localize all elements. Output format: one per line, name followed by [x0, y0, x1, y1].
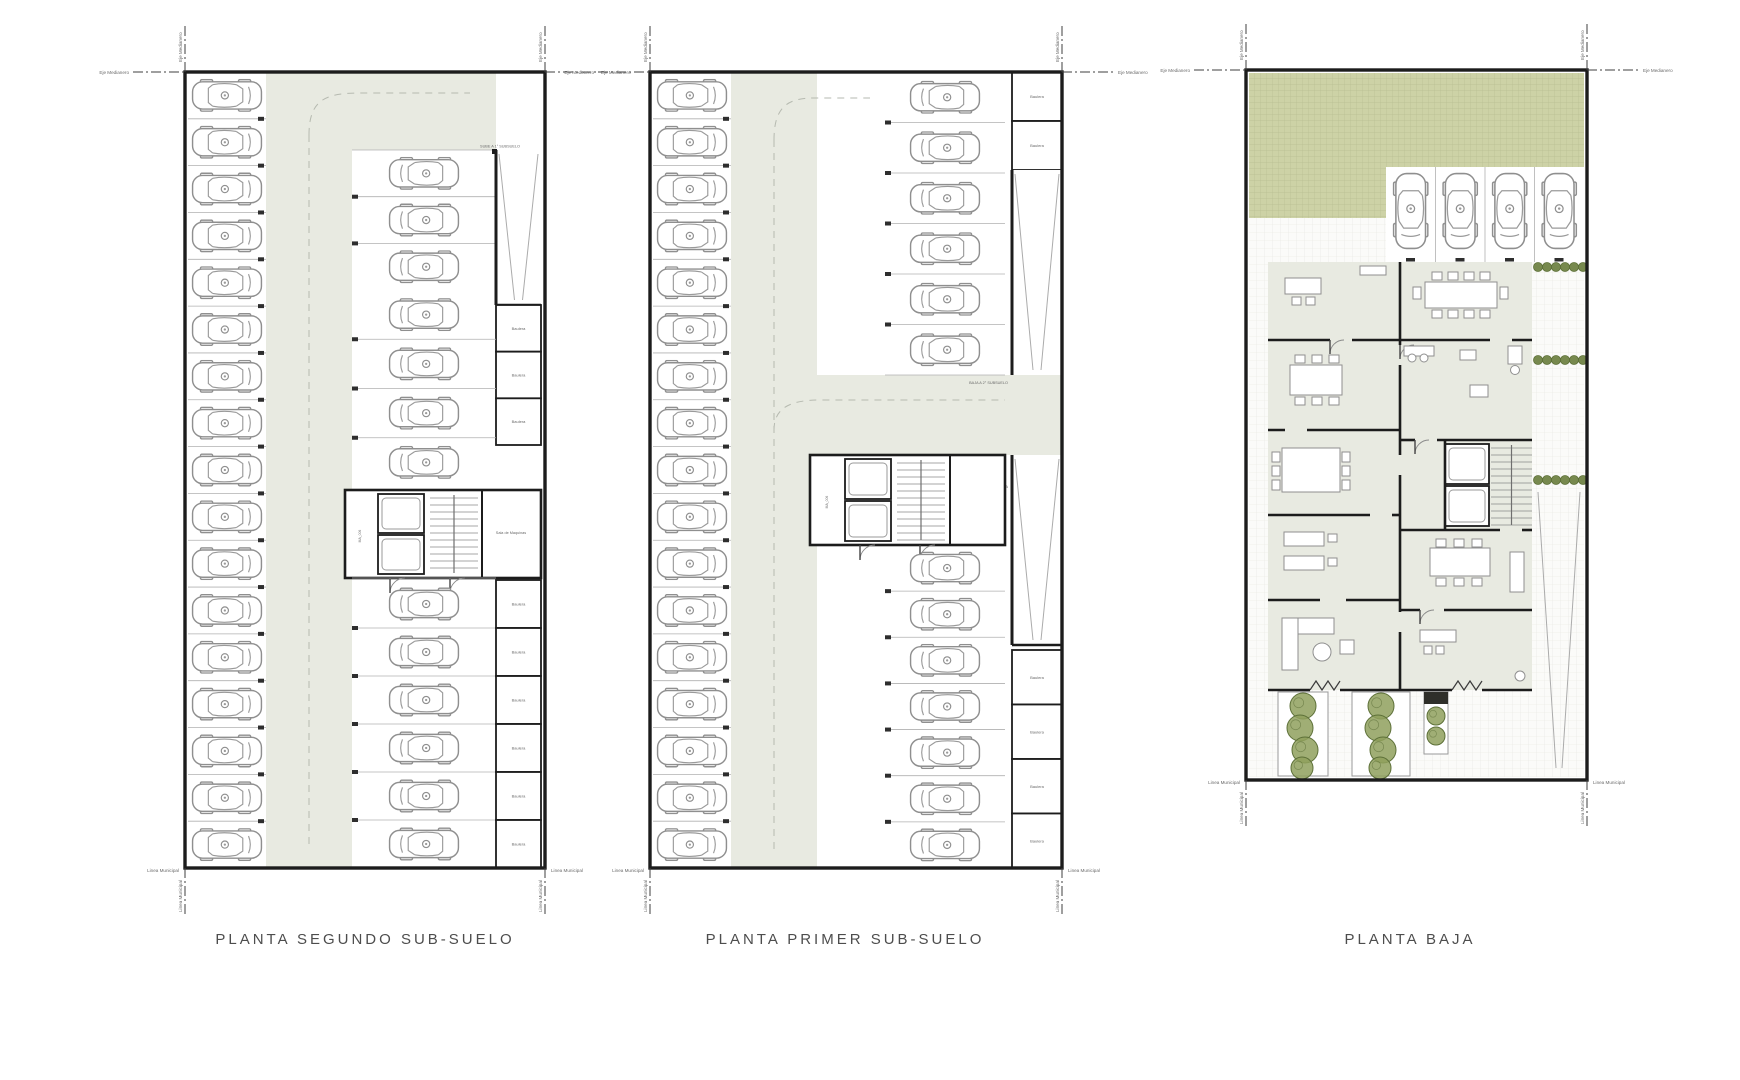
- hedge-icon: [1552, 356, 1561, 365]
- furniture: [1464, 272, 1474, 280]
- furniture: [1464, 310, 1474, 318]
- elevator-cab: [1445, 486, 1489, 526]
- car-icon: [911, 552, 980, 584]
- furniture: [1272, 452, 1280, 462]
- hedge-icon: [1561, 263, 1570, 272]
- wheel-stop: [258, 210, 264, 214]
- car-icon: [193, 501, 262, 533]
- furniture: [1312, 355, 1322, 363]
- hedge-icon: [1543, 356, 1552, 365]
- storage-cell-label: Baulera: [1030, 729, 1045, 734]
- hedge-icon: [1543, 476, 1552, 485]
- furniture: [1329, 397, 1339, 405]
- furniture: [1511, 366, 1520, 375]
- car-icon: [911, 645, 980, 677]
- car-icon: [390, 299, 459, 331]
- furniture: [1508, 346, 1522, 364]
- car-icon: [658, 548, 727, 580]
- furniture: [1424, 646, 1432, 654]
- car-icon: [911, 598, 980, 630]
- storage-cell-label: Baulera: [1030, 784, 1045, 789]
- furniture: [1480, 310, 1490, 318]
- wheel-stop: [885, 774, 891, 778]
- storage-cell-label: Baulera: [512, 746, 527, 751]
- municipal-line-label: Linea Municipal: [1068, 868, 1100, 873]
- elevator-core: MA_006Sala de Maquinas: [345, 490, 541, 593]
- car-icon: [193, 782, 262, 814]
- wheel-stop: [258, 772, 264, 776]
- hedge-icon: [1543, 263, 1552, 272]
- car-icon: [658, 595, 727, 627]
- furniture: [1292, 297, 1301, 305]
- building: [1268, 262, 1532, 690]
- rect: [1445, 444, 1489, 484]
- car-icon: [658, 173, 727, 205]
- municipal-line-label: Linea Municipal: [1055, 880, 1060, 912]
- storage-cell-label: Baulera: [512, 326, 527, 331]
- furniture: [1432, 310, 1442, 318]
- party-axis-label: Eje Medianero: [1055, 32, 1060, 62]
- furniture: [1360, 266, 1386, 275]
- furniture: [1342, 452, 1350, 462]
- furniture: [1408, 354, 1416, 362]
- hedge-icon: [1570, 263, 1579, 272]
- drive-aisle-turning: [817, 375, 1062, 455]
- municipal-line-label: Linea Municipal: [643, 880, 648, 912]
- car-icon: [658, 126, 727, 158]
- furniture: [1430, 548, 1490, 576]
- furniture: [1312, 397, 1322, 405]
- wheel-stop: [352, 674, 358, 678]
- wheel-stop: [723, 117, 729, 121]
- wheel-stop: [258, 679, 264, 683]
- rect: [1012, 455, 1062, 645]
- furniture: [1272, 480, 1280, 490]
- floor-plan-sheet: SUBE A 1° SUBSUELOBauleraBauleraBauleraM…: [0, 0, 1740, 1080]
- storage-cell-label: Baulera: [512, 602, 527, 607]
- furniture: [1425, 282, 1497, 308]
- furniture: [1272, 466, 1280, 476]
- car-icon: [658, 642, 727, 674]
- elevator-cab: [378, 494, 424, 533]
- car-icon: [1443, 174, 1477, 249]
- wheel-stop: [885, 171, 891, 175]
- furniture: [1282, 618, 1298, 670]
- storage-cell-label: Baulera: [512, 419, 527, 424]
- furniture: [1480, 272, 1490, 280]
- storage-cell-group: BauleraBauleraBauleraBauleraBauleraBaule…: [496, 580, 541, 868]
- municipal-line-label: Linea Municipal: [1580, 792, 1585, 824]
- architectural-drawing: SUBE A 1° SUBSUELOBauleraBauleraBauleraM…: [0, 0, 1740, 1080]
- wheel-stop: [885, 121, 891, 125]
- car-icon: [911, 691, 980, 723]
- drive-aisle: [266, 72, 496, 150]
- car-icon: [390, 397, 459, 429]
- tree-icon: [1291, 757, 1313, 779]
- car-icon: [911, 81, 980, 113]
- elevator-core: MA_006: [810, 455, 1005, 560]
- hedge-icon: [1534, 356, 1543, 365]
- wheel-stop: [352, 241, 358, 245]
- car-icon: [911, 132, 980, 164]
- wheel-stop: [885, 681, 891, 685]
- furniture: [1448, 310, 1458, 318]
- ramp-label: SUBE A 1° SUBSUELO: [480, 145, 520, 149]
- hedge-icon: [1570, 476, 1579, 485]
- car-icon: [390, 828, 459, 860]
- furniture: [1404, 346, 1434, 356]
- car-icon: [193, 829, 262, 861]
- wheel-stop: [352, 818, 358, 822]
- car-icon: [1493, 174, 1527, 249]
- furniture: [1306, 297, 1315, 305]
- storage-cell-label: Baulera: [512, 650, 527, 655]
- car-icon: [911, 182, 980, 214]
- car-icon: [193, 220, 262, 252]
- wheel-stop: [723, 257, 729, 261]
- plan-planta-baja: Eje MedianeroEje MedianeroEje MedianeroE…: [1160, 24, 1673, 826]
- elevator-tag: MA_006: [825, 496, 829, 509]
- car-icon: [911, 334, 980, 366]
- wheel-stop: [1505, 258, 1514, 262]
- car-icon: [658, 782, 727, 814]
- wheel-stop: [1555, 258, 1564, 262]
- dark-planter: [1424, 692, 1448, 704]
- car-icon: [193, 314, 262, 346]
- car-icon: [390, 447, 459, 479]
- wheel-stop: [258, 585, 264, 589]
- party-axis-label: Eje Medianero: [643, 32, 648, 62]
- hedge-icon: [1561, 476, 1570, 485]
- furniture: [1454, 578, 1464, 586]
- car-icon: [193, 267, 262, 299]
- plan-primer-subsuelo: BauleraBauleraBAJA A 2° SUBSUELOSUBE A P…: [564, 26, 1148, 914]
- wheel-stop: [352, 722, 358, 726]
- car-icon: [193, 361, 262, 393]
- wheel-stop: [352, 626, 358, 630]
- municipal-line-label: Linea Municipal: [612, 868, 644, 873]
- rect: [845, 459, 891, 499]
- furniture: [1284, 532, 1324, 546]
- furniture: [1284, 556, 1324, 570]
- wheel-stop: [258, 164, 264, 168]
- car-icon: [193, 595, 262, 627]
- machine-room-label: Sala de Maquinas: [496, 531, 526, 535]
- storage-cell-label: Baulera: [512, 842, 527, 847]
- wheel-stop: [723, 491, 729, 495]
- car-icon: [658, 267, 727, 299]
- wheel-stop: [723, 538, 729, 542]
- furniture: [1413, 287, 1421, 299]
- storage-cell-label: Baulera: [1030, 94, 1045, 99]
- wheel-stop: [723, 164, 729, 168]
- car-icon: [390, 251, 459, 283]
- municipal-line-label: Linea Municipal: [1208, 780, 1240, 785]
- party-axis-label: Eje Medianero: [1118, 70, 1148, 75]
- car-icon: [911, 737, 980, 769]
- car-icon: [658, 454, 727, 486]
- car-icon: [658, 314, 727, 346]
- wheel-stop: [1456, 258, 1465, 262]
- hedge-icon: [1570, 356, 1579, 365]
- furniture: [1285, 278, 1321, 294]
- car-icon: [193, 407, 262, 439]
- tree-icon: [1369, 757, 1391, 779]
- party-axis-label: Eje Medianero: [1580, 30, 1585, 60]
- core-walls: [810, 455, 1005, 545]
- party-axis-label: Eje Medianero: [178, 32, 183, 62]
- rect: [1012, 170, 1062, 375]
- wheel-stop: [723, 585, 729, 589]
- car-icon: [390, 588, 459, 620]
- tree-icon: [1287, 715, 1313, 741]
- car-icon: [390, 732, 459, 764]
- party-axis-label: Eje Medianero: [1160, 68, 1190, 73]
- rect: [845, 501, 891, 541]
- wheel-stop: [723, 398, 729, 402]
- furniture: [1448, 272, 1458, 280]
- wheel-stop: [258, 304, 264, 308]
- car-icon: [193, 735, 262, 767]
- storage-cell-group: BauleraBauleraBaulera: [496, 305, 541, 445]
- hedge-icon: [1534, 263, 1543, 272]
- wheel-stop: [258, 726, 264, 730]
- party-axis-label: Eje Medianero: [1239, 30, 1244, 60]
- municipal-line-label: Linea Municipal: [1593, 780, 1625, 785]
- municipal-line-label: Linea Municipal: [178, 880, 183, 912]
- wheel-stop: [258, 398, 264, 402]
- wheel-stop: [258, 351, 264, 355]
- hedge-icon: [1561, 356, 1570, 365]
- rect: [378, 535, 424, 574]
- wheel-stop: [885, 589, 891, 593]
- elevator-cab: [845, 501, 891, 541]
- car-icon: [193, 688, 262, 720]
- party-axis-label: Eje Medianero: [1643, 68, 1673, 73]
- municipal-line-label: Linea Municipal: [538, 880, 543, 912]
- furniture: [1432, 272, 1442, 280]
- furniture: [1342, 466, 1350, 476]
- ramp-label: BAJA A 2° SUBSUELO: [969, 381, 1008, 385]
- plan-segundo-subsuelo: SUBE A 1° SUBSUELOBauleraBauleraBauleraM…: [99, 26, 631, 914]
- wheel-stop: [723, 772, 729, 776]
- wheel-stop: [352, 195, 358, 199]
- storage-cell-label: Baulera: [512, 794, 527, 799]
- hedge-icon: [1552, 476, 1561, 485]
- storage-cell-label: Baulera: [1030, 675, 1045, 680]
- wheel-stop: [352, 387, 358, 391]
- wheel-stop: [352, 337, 358, 341]
- ramp-post: [492, 149, 497, 154]
- car-icon: [911, 829, 980, 861]
- wheel-stop: [258, 538, 264, 542]
- wheel-stop: [723, 210, 729, 214]
- party-axis-label: Eje Medianero: [538, 32, 543, 62]
- furniture: [1340, 640, 1354, 654]
- furniture: [1282, 448, 1340, 492]
- wheel-stop: [258, 117, 264, 121]
- furniture: [1329, 355, 1339, 363]
- parking-stall-group: [188, 80, 266, 861]
- wheel-stop: [723, 351, 729, 355]
- storage-cell-label: Baulera: [1030, 838, 1045, 843]
- plan-title-segundo-subsuelo: PLANTA SEGUNDO SUB-SUELO: [215, 931, 514, 948]
- furniture: [1328, 534, 1337, 542]
- municipal-line-label: Linea Municipal: [551, 868, 583, 873]
- wheel-stop: [885, 222, 891, 226]
- furniture: [1328, 558, 1337, 566]
- car-icon: [390, 158, 459, 190]
- furniture: [1436, 646, 1444, 654]
- furniture: [1470, 385, 1488, 397]
- wheel-stop: [258, 445, 264, 449]
- rect: [1445, 486, 1489, 526]
- car-icon: [390, 780, 459, 812]
- tree-icon: [1365, 715, 1391, 741]
- plan-title-primer-subsuelo: PLANTA PRIMER SUB-SUELO: [706, 931, 985, 948]
- elevator-cab: [378, 535, 424, 574]
- furniture: [1420, 354, 1428, 362]
- car-icon: [658, 688, 727, 720]
- furniture: [1472, 578, 1482, 586]
- car-icon: [658, 361, 727, 393]
- furniture: [1454, 539, 1464, 547]
- elevator-cab: [845, 459, 891, 499]
- municipal-line-label: Linea Municipal: [1239, 792, 1244, 824]
- car-icon: [390, 204, 459, 236]
- hedge-icon: [1552, 263, 1561, 272]
- car-icon: [193, 642, 262, 674]
- storage-cell-label: Baulera: [512, 373, 527, 378]
- furniture: [1313, 643, 1331, 661]
- car-icon: [658, 80, 727, 112]
- lawn: [1249, 167, 1386, 218]
- storage-cell-group: BauleraBauleraBauleraBaulera: [1012, 650, 1062, 868]
- party-axis-label: Eje Medianero: [99, 70, 129, 75]
- wheel-stop: [258, 257, 264, 261]
- car-icon: [390, 348, 459, 380]
- furniture: [1290, 365, 1342, 395]
- car-icon: [658, 735, 727, 767]
- wheel-stop: [258, 632, 264, 636]
- wheel-stop: [723, 819, 729, 823]
- furniture: [1436, 539, 1446, 547]
- wheel-stop: [885, 728, 891, 732]
- car-icon: [911, 783, 980, 815]
- wheel-stop: [258, 819, 264, 823]
- parking-stall-group: [653, 80, 731, 861]
- plan-title-planta-baja: PLANTA BAJA: [1344, 931, 1475, 948]
- car-icon: [390, 636, 459, 668]
- wheel-stop: [723, 679, 729, 683]
- party-axis-label: Eje Medianero: [564, 70, 594, 75]
- elevator-cab: [1445, 444, 1489, 484]
- wheel-stop: [885, 635, 891, 639]
- wheel-stop: [1406, 258, 1415, 262]
- car-icon: [658, 501, 727, 533]
- furniture: [1510, 552, 1524, 592]
- car-icon: [193, 126, 262, 158]
- car-icon: [911, 233, 980, 265]
- wheel-stop: [723, 726, 729, 730]
- car-icon: [193, 454, 262, 486]
- car-icon: [658, 220, 727, 252]
- lawn: [1249, 73, 1584, 167]
- storage-cell-label: Baulera: [512, 698, 527, 703]
- car-icon: [1394, 174, 1428, 249]
- wheel-stop: [723, 632, 729, 636]
- furniture: [1295, 397, 1305, 405]
- car-icon: [193, 173, 262, 205]
- furniture: [1342, 480, 1350, 490]
- rect: [496, 150, 541, 305]
- wheel-stop: [885, 323, 891, 327]
- wheel-stop: [352, 770, 358, 774]
- wheel-stop: [352, 436, 358, 440]
- wheel-stop: [723, 445, 729, 449]
- surface-parking: [1386, 167, 1584, 262]
- wheel-stop: [258, 491, 264, 495]
- storage-cell-group: BauleraBaulera: [1012, 72, 1062, 170]
- furniture: [1295, 355, 1305, 363]
- furniture: [1500, 287, 1508, 299]
- furniture: [1460, 350, 1476, 360]
- hedge-icon: [1534, 476, 1543, 485]
- furniture: [1436, 578, 1446, 586]
- furniture: [1515, 671, 1525, 681]
- elevator-tag: MA_006: [358, 530, 362, 543]
- wheel-stop: [723, 304, 729, 308]
- wheel-stop: [885, 820, 891, 824]
- furniture: [1420, 630, 1456, 642]
- car-icon: [193, 548, 262, 580]
- car-icon: [911, 283, 980, 315]
- car-icon: [658, 829, 727, 861]
- car-icon: [193, 80, 262, 112]
- car-icon: [658, 407, 727, 439]
- furniture: [1472, 539, 1482, 547]
- storage-cell-label: Baulera: [1030, 143, 1045, 148]
- wheel-stop: [885, 272, 891, 276]
- car-icon: [1542, 174, 1576, 249]
- car-icon: [390, 684, 459, 716]
- municipal-line-label: Linea Municipal: [147, 868, 179, 873]
- rect: [378, 494, 424, 533]
